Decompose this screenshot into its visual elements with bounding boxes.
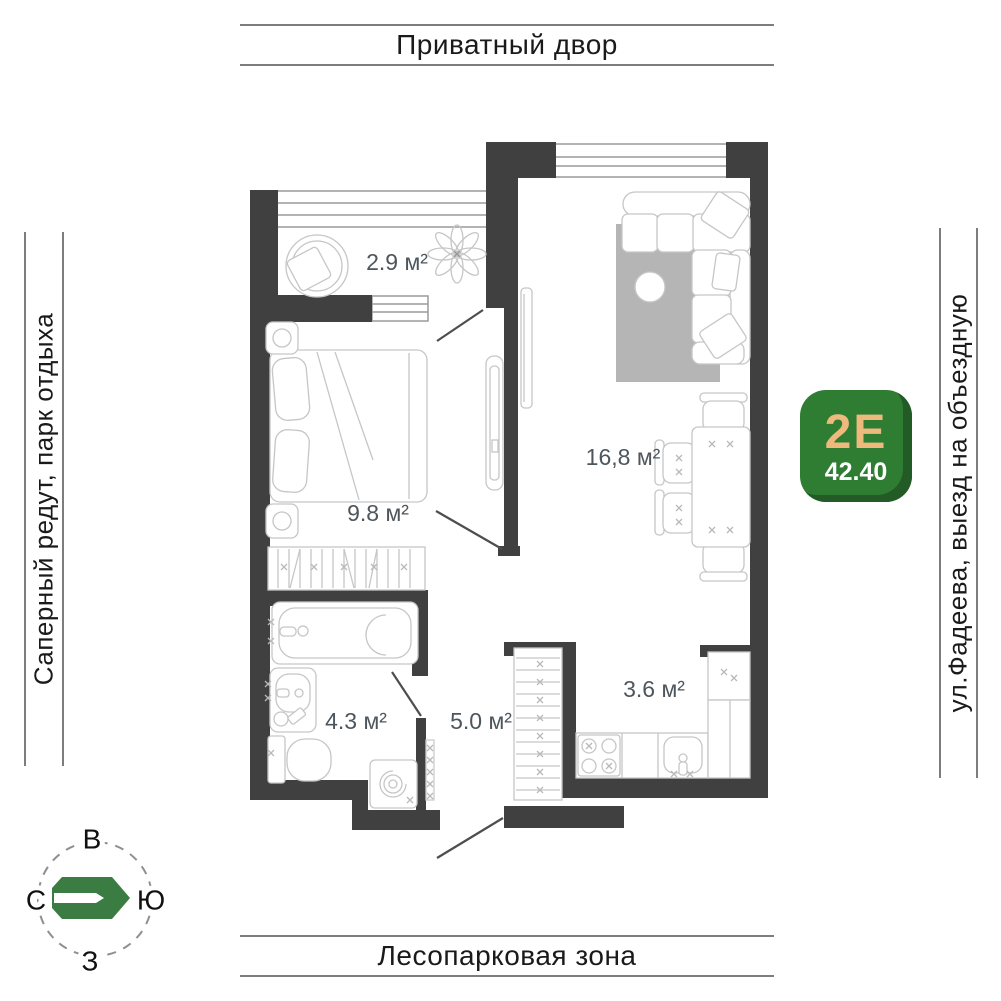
bathtub	[272, 602, 418, 664]
balcony-door-swing	[437, 310, 483, 341]
entrance-door-swing	[437, 818, 503, 858]
room-area-label-kitchen: 3.6 м²	[623, 676, 685, 702]
bed	[270, 350, 427, 502]
hallway-closet	[514, 648, 562, 800]
bedroom-mirror-cabinet	[486, 356, 503, 490]
room-area-label-bedroom: 9.8 м²	[347, 500, 409, 526]
balcony-bedroom-window	[372, 296, 428, 321]
room-area-label-hallway: 5.0 м²	[450, 708, 512, 734]
nightstand-top	[266, 322, 298, 354]
kitchen-cabinet	[708, 700, 750, 778]
balcony-window	[278, 191, 486, 227]
stove-icon	[578, 735, 620, 776]
bedroom-wardrobe	[268, 547, 425, 590]
toilet	[268, 736, 331, 783]
bedroom-door-swing	[436, 511, 502, 549]
tv-icon	[521, 288, 532, 408]
room-area-label-balcony: 2.9 м²	[366, 249, 428, 275]
coffee-table	[635, 272, 665, 302]
nightstand-bottom	[266, 504, 298, 538]
balcony-armchair-icon	[286, 235, 348, 297]
fridge	[708, 652, 750, 700]
kitchen-sink-icon	[664, 737, 702, 777]
bathroom-sink	[270, 668, 316, 732]
dining-set	[655, 393, 750, 581]
room-area-label-bathroom: 4.3 м²	[325, 708, 387, 734]
living-room-window	[556, 144, 726, 177]
plant-icon	[428, 225, 486, 283]
bathroom-door-swing	[392, 672, 421, 716]
room-area-label-living-room: 16,8 м²	[586, 444, 661, 470]
floor-plan: 2.9 м² 9.8 м² 16,8 м² 4.3 м² 5.0 м² 3.6 …	[0, 0, 1001, 1001]
utility-duct	[426, 740, 434, 800]
